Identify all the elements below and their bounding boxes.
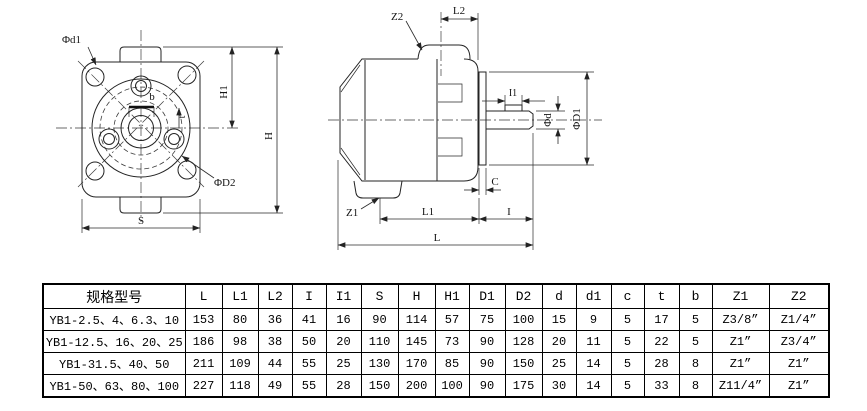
value-cell: 30 [542, 375, 576, 398]
front-view-drawing: Φd1 b t H1 H ΦD2 [56, 30, 283, 233]
value-cell: 114 [398, 309, 435, 331]
table-row: YB1-50、63、80、100227118495528150200100901… [43, 375, 829, 398]
value-cell: 5 [679, 331, 712, 353]
dimension-z2: Z2 [391, 11, 422, 50]
value-cell: 109 [222, 353, 258, 375]
spec-table-head-row: 规格型号LL1L2II1SHH1D1D2dd1ctbZ1Z2 [43, 284, 829, 309]
column-header: t [644, 284, 679, 309]
value-cell: 90 [469, 331, 505, 353]
value-cell: 5 [611, 309, 644, 331]
value-cell: 211 [185, 353, 222, 375]
bottom-tab [120, 197, 161, 213]
model-cell: YB1-12.5、16、20、25 [43, 331, 185, 353]
value-cell: 5 [611, 375, 644, 398]
value-cell: 33 [644, 375, 679, 398]
label-s: S [138, 215, 144, 227]
value-cell: 25 [326, 353, 361, 375]
value-cell: 200 [398, 375, 435, 398]
value-cell: Z1” [712, 353, 769, 375]
value-cell: 11 [576, 331, 611, 353]
dimension-phi-d1: Φd1 [62, 34, 96, 65]
value-cell: Z1” [769, 353, 829, 375]
label-l: L [434, 232, 441, 244]
dimension-l2: L2 [441, 5, 478, 60]
corner-bolt-hole [86, 162, 104, 180]
extension-line [479, 168, 486, 195]
dimension-i1: I1 [482, 88, 545, 109]
label-l2: L2 [453, 5, 465, 17]
column-header: D1 [469, 284, 505, 309]
leader-line [361, 198, 379, 209]
value-cell: 175 [505, 375, 542, 398]
mounting-foot [354, 181, 402, 198]
top-tab [120, 47, 161, 62]
column-header: d1 [576, 284, 611, 309]
dimension-t: t [177, 108, 188, 128]
value-cell: 90 [469, 375, 505, 398]
dimension-c: C [464, 168, 501, 195]
label-phi-d1-side: ΦD1 [571, 108, 583, 129]
column-header: L [185, 284, 222, 309]
label-phi-d: Φd [542, 113, 554, 127]
value-cell: 38 [258, 331, 292, 353]
value-cell: 145 [398, 331, 435, 353]
value-cell: 28 [326, 375, 361, 398]
value-cell: Z11/4” [712, 375, 769, 398]
column-header: H1 [435, 284, 469, 309]
value-cell: 57 [435, 309, 469, 331]
value-cell: 73 [435, 331, 469, 353]
body-bolt-hole [164, 129, 184, 149]
value-cell: 85 [435, 353, 469, 375]
value-cell: 25 [542, 353, 576, 375]
value-cell: 28 [644, 353, 679, 375]
value-cell: 5 [611, 331, 644, 353]
label-phi-d1: Φd1 [62, 34, 81, 46]
shaft-key [505, 105, 522, 111]
value-cell: 80 [222, 309, 258, 331]
value-cell: 8 [679, 353, 712, 375]
value-cell: 36 [258, 309, 292, 331]
label-h1: H1 [218, 85, 230, 98]
value-cell: 49 [258, 375, 292, 398]
model-cell: YB1-2.5、4、6.3、10 [43, 309, 185, 331]
model-cell: YB1-50、63、80、100 [43, 375, 185, 398]
value-cell: 90 [469, 353, 505, 375]
column-header: c [611, 284, 644, 309]
dimension-h1: H1 [218, 47, 232, 128]
value-cell: Z1/4” [769, 309, 829, 331]
column-header: d [542, 284, 576, 309]
label-z2: Z2 [391, 11, 403, 23]
value-cell: 130 [361, 353, 398, 375]
column-header: I1 [326, 284, 361, 309]
value-cell: 75 [469, 309, 505, 331]
value-cell: 90 [361, 309, 398, 331]
label-i1: I1 [509, 88, 517, 99]
label-h: H [263, 132, 275, 140]
label-c: C [491, 176, 498, 188]
table-row: YB1-12.5、16、20、2518698385020110145739012… [43, 331, 829, 353]
dimension-i: I [479, 133, 533, 224]
value-cell: 100 [435, 375, 469, 398]
label-t: t [177, 115, 188, 118]
value-cell: Z3/4” [769, 331, 829, 353]
column-header: Z2 [769, 284, 829, 309]
model-cell: YB1-31.5、40、50 [43, 353, 185, 375]
value-cell: 55 [292, 375, 326, 398]
column-header: H [398, 284, 435, 309]
leader-line [406, 21, 422, 50]
column-header: I [292, 284, 326, 309]
column-header: S [361, 284, 398, 309]
table-row: YB1-2.5、4、6.3、10153803641169011457751001… [43, 309, 829, 331]
corner-bolt-hole [178, 66, 196, 84]
value-cell: 15 [542, 309, 576, 331]
value-cell: 8 [679, 375, 712, 398]
value-cell: 17 [644, 309, 679, 331]
column-header: L1 [222, 284, 258, 309]
mounting-flange-plate [479, 72, 486, 165]
value-cell: 5 [611, 353, 644, 375]
column-header: D2 [505, 284, 542, 309]
label-i: I [507, 206, 511, 218]
label-z1: Z1 [346, 207, 358, 219]
label-b: b [149, 91, 155, 103]
value-cell: 227 [185, 375, 222, 398]
dimension-phi-d2: ΦD2 [182, 156, 235, 189]
value-cell: 50 [292, 331, 326, 353]
column-header: b [679, 284, 712, 309]
label-phi-d2: ΦD2 [214, 177, 235, 189]
pump-datasheet-page: Φd1 b t H1 H ΦD2 [0, 0, 867, 411]
value-cell: 14 [576, 375, 611, 398]
technical-drawing: Φd1 b t H1 H ΦD2 [0, 0, 867, 278]
dimension-z1: Z1 [346, 198, 379, 219]
side-view-drawing: Z2 L2 I1 Φd [328, 5, 602, 250]
value-cell: 9 [576, 309, 611, 331]
value-cell: Z3/8” [712, 309, 769, 331]
leader-line [182, 156, 214, 178]
value-cell: 22 [644, 331, 679, 353]
value-cell: 153 [185, 309, 222, 331]
value-cell: 186 [185, 331, 222, 353]
value-cell: 5 [679, 309, 712, 331]
value-cell: 16 [326, 309, 361, 331]
spec-table-body: YB1-2.5、4、6.3、10153803641169011457751001… [43, 309, 829, 398]
column-header: L2 [258, 284, 292, 309]
value-cell: 98 [222, 331, 258, 353]
value-cell: 44 [258, 353, 292, 375]
label-l1: L1 [422, 206, 434, 218]
table-row: YB1-31.5、40、5021110944552513017085901502… [43, 353, 829, 375]
value-cell: 118 [222, 375, 258, 398]
value-cell: 14 [576, 353, 611, 375]
column-header: 规格型号 [43, 284, 185, 309]
value-cell: 150 [361, 375, 398, 398]
dimension-l1: L1 [380, 198, 479, 224]
value-cell: Z1” [712, 331, 769, 353]
column-header: Z1 [712, 284, 769, 309]
corner-bolt-hole [86, 68, 104, 86]
spec-table: 规格型号LL1L2II1SHH1D1D2dd1ctbZ1Z2 YB1-2.5、4… [42, 283, 830, 398]
value-cell: 170 [398, 353, 435, 375]
value-cell: 20 [326, 331, 361, 353]
port-boss [418, 45, 470, 59]
value-cell: 20 [542, 331, 576, 353]
value-cell: 55 [292, 353, 326, 375]
value-cell: 110 [361, 331, 398, 353]
value-cell: Z1” [769, 375, 829, 398]
value-cell: 150 [505, 353, 542, 375]
value-cell: 41 [292, 309, 326, 331]
value-cell: 128 [505, 331, 542, 353]
dimension-b: b [149, 91, 155, 103]
value-cell: 100 [505, 309, 542, 331]
